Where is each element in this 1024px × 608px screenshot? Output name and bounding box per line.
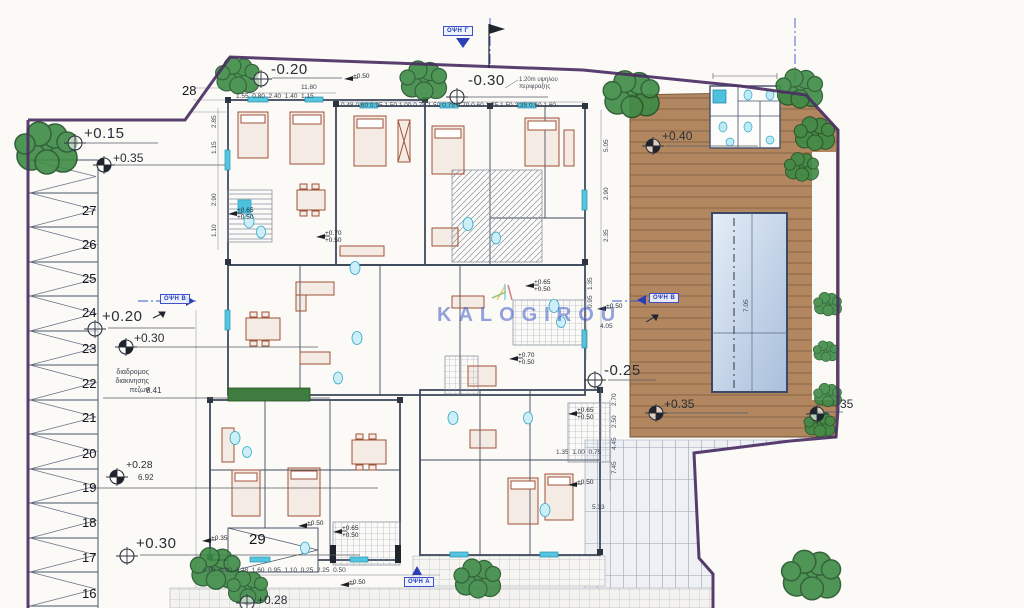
level-plus050-right-symbol [597, 306, 611, 311]
level-plus035-ramp-symbol [202, 538, 216, 543]
bed [432, 126, 464, 174]
kitchen-counter [340, 246, 384, 256]
site-plan-drawing: KALOGIROU 1.20m υψηλου περιφραξης διαδρο… [0, 0, 1024, 608]
level-plus050-mid-symbol [298, 523, 312, 528]
level-minus025-symbol [584, 371, 606, 389]
wardrobe [564, 130, 574, 166]
bed [508, 478, 538, 524]
swimming-pool [712, 213, 787, 392]
shower-fixture [713, 90, 726, 103]
hedge [228, 388, 310, 401]
dining-table [470, 430, 496, 448]
bed [354, 116, 386, 166]
level-plus070-050-a-symbol [316, 234, 330, 239]
sofa [300, 352, 330, 364]
level-plus020-symbol [84, 320, 106, 338]
bed [288, 468, 320, 516]
sofa [452, 296, 484, 308]
level-plus030-bottom-symbol [116, 547, 138, 565]
level-plus030-left-symbol [115, 338, 137, 356]
dining-table [246, 312, 280, 346]
deck-side-strip [812, 152, 836, 400]
plan-graphics [0, 0, 1024, 608]
bed [290, 112, 324, 164]
north-flag-icon [489, 24, 505, 68]
sofa [296, 282, 334, 311]
level-plus035-upper-symbol [93, 156, 115, 174]
logo-mark [492, 284, 512, 300]
bed [232, 470, 260, 516]
bed [525, 118, 559, 166]
level-plus070-050-b-symbol [509, 356, 523, 361]
dining-table [468, 366, 496, 386]
dining-table [297, 184, 325, 216]
level-plus050-bottom-symbol [340, 582, 354, 587]
dining-table [352, 434, 386, 470]
bed [238, 112, 268, 158]
wardrobe [398, 120, 410, 162]
level-plus028-symbol [106, 468, 128, 486]
level-plus050-top-symbol [344, 76, 358, 81]
dining-table [432, 228, 458, 246]
level-plus065-050-d-symbol [525, 283, 539, 288]
